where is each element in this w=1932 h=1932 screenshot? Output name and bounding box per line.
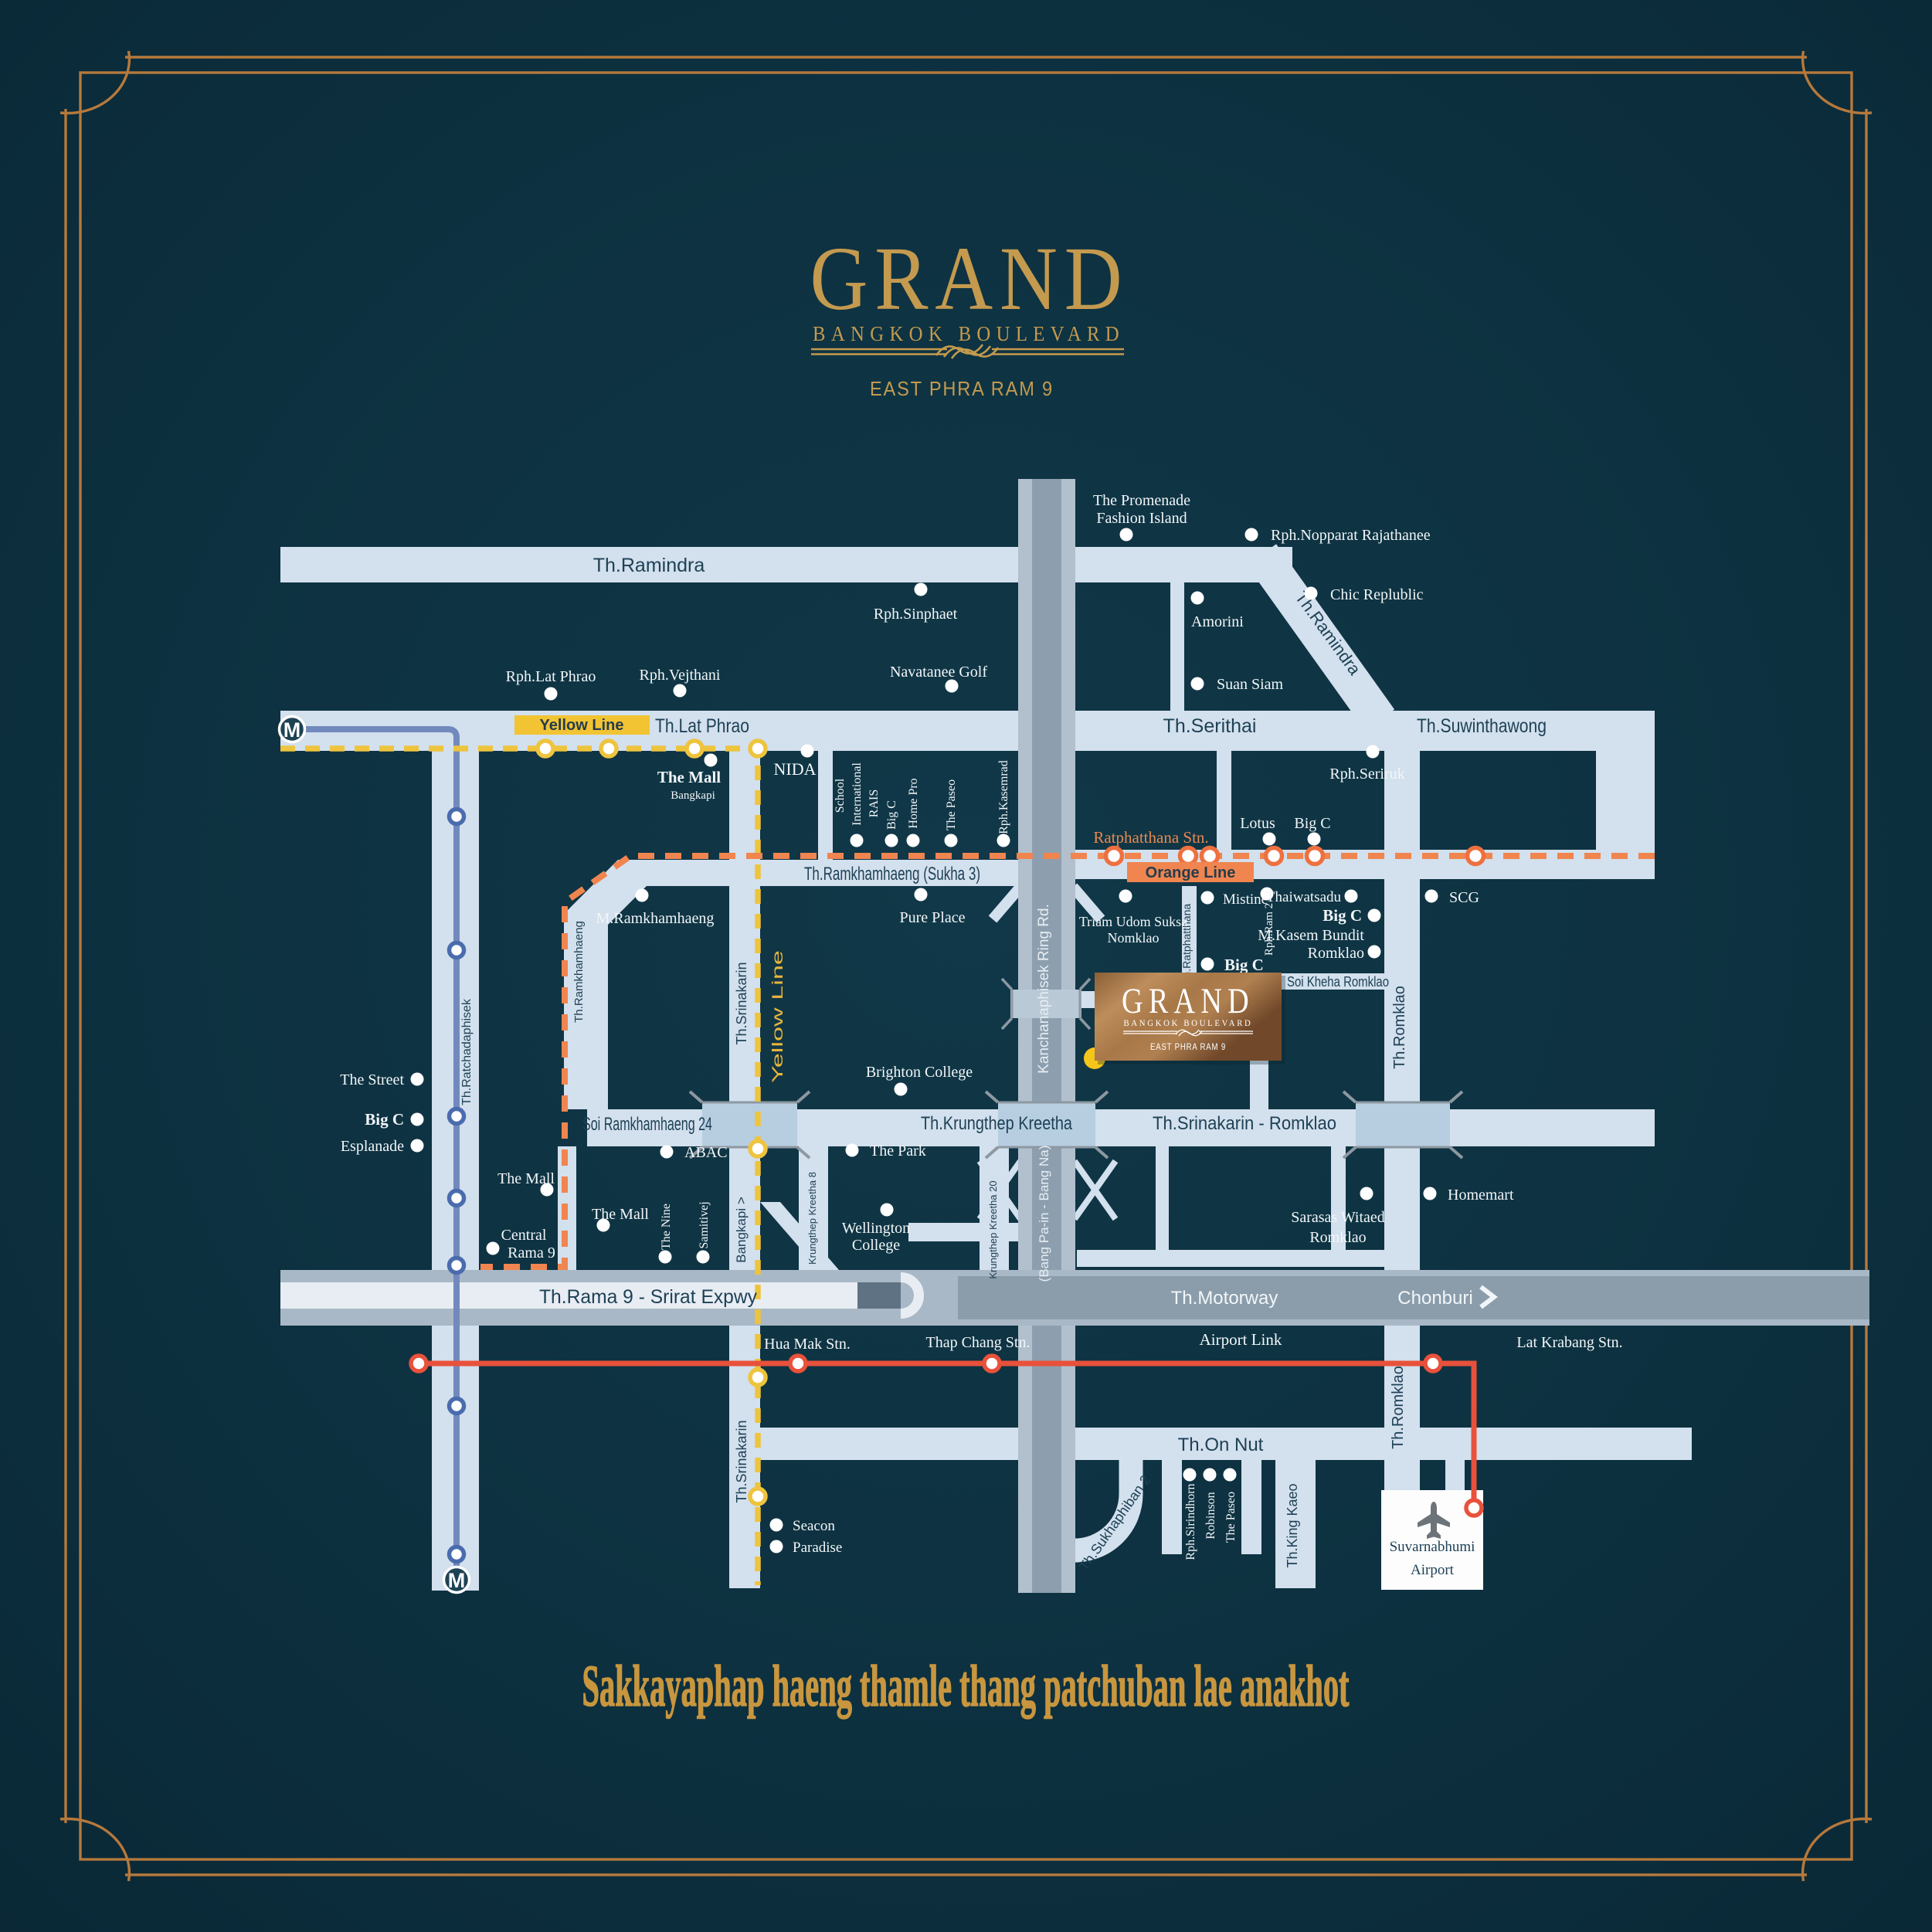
- svg-text:GRAND: GRAND: [1122, 981, 1255, 1021]
- svg-text:International: International: [851, 762, 864, 826]
- svg-text:The Mall: The Mall: [592, 1206, 649, 1223]
- svg-text:EAST PHRA RAM 9: EAST PHRA RAM 9: [1150, 1041, 1226, 1052]
- svg-text:The Mall: The Mall: [657, 768, 721, 786]
- svg-text:Big C: Big C: [1294, 815, 1330, 832]
- svg-text:Th.Motorway: Th.Motorway: [1171, 1288, 1278, 1309]
- svg-text:Thap Chang Stn.: Thap Chang Stn.: [926, 1334, 1031, 1351]
- svg-text:Romklao: Romklao: [1308, 945, 1364, 962]
- svg-text:Rph.Vejthani: Rph.Vejthani: [640, 667, 721, 684]
- svg-text:Rama 9: Rama 9: [508, 1244, 555, 1261]
- svg-text:Sakkayaphap haeng thamle thang: Sakkayaphap haeng thamle thang patchuban…: [582, 1654, 1350, 1719]
- svg-text:GRAND: GRAND: [810, 228, 1129, 329]
- svg-text:Orange Line: Orange Line: [1146, 864, 1236, 881]
- svg-text:Big C: Big C: [365, 1110, 404, 1129]
- svg-text:M.Kasem Bundit: M.Kasem Bundit: [1258, 927, 1364, 944]
- svg-text:Lat Krabang Stn.: Lat Krabang Stn.: [1516, 1334, 1622, 1351]
- svg-text:(Bang Pa-in - Bang Na): (Bang Pa-in - Bang Na): [1037, 1146, 1051, 1282]
- svg-text:Fashion Island: Fashion Island: [1096, 510, 1187, 527]
- svg-text:The Park: The Park: [870, 1143, 926, 1160]
- svg-text:Ratphatthana Stn.: Ratphatthana Stn.: [1093, 828, 1208, 847]
- svg-text:Soi Kheha Romklao: Soi Kheha Romklao: [1287, 974, 1389, 990]
- svg-text:M: M: [448, 1569, 466, 1592]
- svg-text:Th.Krungthep Kreetha: Th.Krungthep Kreetha: [921, 1113, 1073, 1134]
- svg-text:Th.Srinakarin: Th.Srinakarin: [734, 1420, 749, 1502]
- svg-text:BANGKOK BOULEVARD: BANGKOK BOULEVARD: [813, 322, 1125, 345]
- svg-text:Big C: Big C: [1224, 956, 1264, 974]
- svg-text:Sarasas Witaed: Sarasas Witaed: [1291, 1209, 1385, 1226]
- svg-text:Bangkapi >: Bangkapi >: [734, 1197, 749, 1263]
- svg-text:Esplanade: Esplanade: [341, 1138, 404, 1155]
- svg-text:Soi Ramkhamhaeng 24: Soi Ramkhamhaeng 24: [582, 1114, 712, 1135]
- svg-text:Rph.Seriruk: Rph.Seriruk: [1329, 766, 1404, 783]
- svg-text:Seacon: Seacon: [793, 1518, 835, 1534]
- svg-text:Krungthep Kreetha 20: Krungthep Kreetha 20: [987, 1180, 999, 1278]
- svg-text:Suvarnabhumi: Suvarnabhumi: [1390, 1539, 1475, 1555]
- svg-text:RAIS: RAIS: [868, 789, 881, 817]
- svg-text:Chonburi: Chonburi: [1397, 1288, 1472, 1309]
- svg-text:BANGKOK BOULEVARD: BANGKOK BOULEVARD: [1124, 1017, 1253, 1028]
- svg-text:Bangkapi: Bangkapi: [671, 789, 715, 802]
- svg-text:Rph.Sirindhorn: Rph.Sirindhorn: [1184, 1483, 1197, 1560]
- svg-text:Homemart: Homemart: [1448, 1187, 1514, 1204]
- svg-text:Brighton College: Brighton College: [866, 1064, 973, 1081]
- svg-text:Th.Ramkhamhaeng (Sukha 3): Th.Ramkhamhaeng (Sukha 3): [804, 864, 980, 885]
- svg-text:Yellow Line: Yellow Line: [540, 717, 624, 734]
- svg-text:Th.Ramindra: Th.Ramindra: [593, 555, 705, 576]
- svg-text:Th.Serithai: Th.Serithai: [1163, 715, 1257, 737]
- svg-text:Samitivej: Samitivej: [698, 1201, 711, 1248]
- svg-text:Th.Ratchadaphisek: Th.Ratchadaphisek: [460, 998, 474, 1105]
- svg-text:Thaiwatsadu: Thaiwatsadu: [1266, 889, 1342, 905]
- svg-text:NIDA: NIDA: [774, 759, 817, 779]
- svg-text:Yellow Line: Yellow Line: [770, 950, 786, 1083]
- svg-text:Nomklao: Nomklao: [1108, 930, 1160, 946]
- svg-text:Amorini: Amorini: [1191, 613, 1244, 630]
- svg-text:Pure Place: Pure Place: [900, 909, 966, 926]
- svg-text:College: College: [852, 1237, 900, 1254]
- svg-text:M: M: [284, 718, 301, 742]
- svg-text:Th.Rama 9 - Srirat Expwy: Th.Rama 9 - Srirat Expwy: [539, 1286, 757, 1308]
- svg-text:Wellington: Wellington: [842, 1220, 910, 1237]
- svg-text:Rph.Lat Phrao: Rph.Lat Phrao: [506, 668, 596, 685]
- svg-text:Hua Mak Stn.: Hua Mak Stn.: [764, 1336, 851, 1353]
- svg-text:Kanchanaphisek Ring Rd.: Kanchanaphisek Ring Rd.: [1036, 904, 1052, 1074]
- svg-text:Th.Romklao: Th.Romklao: [1390, 1366, 1407, 1449]
- svg-text:Rph.Nopparat Rajathanee: Rph.Nopparat Rajathanee: [1271, 527, 1431, 544]
- svg-text:ABAC: ABAC: [684, 1144, 728, 1161]
- svg-text:Rph.Kasemrad: Rph.Kasemrad: [997, 760, 1010, 834]
- svg-text:Central: Central: [501, 1227, 547, 1244]
- svg-text:Robinson: Robinson: [1204, 1492, 1217, 1539]
- svg-text:Navatanee Golf: Navatanee Golf: [890, 664, 987, 681]
- svg-text:EAST PHRA RAM 9: EAST PHRA RAM 9: [870, 377, 1054, 400]
- svg-text:Paradise: Paradise: [793, 1540, 842, 1556]
- svg-text:Th.Ramkhamhaeng: Th.Ramkhamhaeng: [572, 921, 586, 1023]
- svg-text:Big C: Big C: [885, 800, 898, 830]
- svg-text:M.Ramkhamhaeng: M.Ramkhamhaeng: [596, 910, 715, 927]
- svg-text:The Promenade: The Promenade: [1093, 492, 1190, 509]
- svg-text:School: School: [834, 778, 847, 813]
- svg-text:Triam Udom Suksa: Triam Udom Suksa: [1079, 914, 1187, 929]
- svg-text:SCG: SCG: [1449, 889, 1479, 906]
- svg-text:Th.On Nut: Th.On Nut: [1178, 1435, 1264, 1455]
- svg-text:Th.Romklao: Th.Romklao: [1391, 986, 1408, 1069]
- svg-text:Airport Link: Airport Link: [1200, 1330, 1282, 1349]
- svg-text:Home Pro: Home Pro: [907, 778, 920, 828]
- svg-text:Romklao: Romklao: [1309, 1229, 1366, 1246]
- svg-text:The Mall: The Mall: [497, 1170, 555, 1187]
- svg-text:Krungthep Kreetha 8: Krungthep Kreetha 8: [806, 1172, 818, 1265]
- svg-text:Rph.Sinphaet: Rph.Sinphaet: [874, 606, 958, 623]
- svg-text:Th.Srinakarin: Th.Srinakarin: [734, 962, 749, 1044]
- svg-text:The Street: The Street: [340, 1071, 404, 1088]
- svg-text:Th.Lat Phrao: Th.Lat Phrao: [655, 715, 749, 737]
- svg-text:Big C: Big C: [1323, 906, 1362, 925]
- svg-text:Suan Siam: Suan Siam: [1217, 676, 1284, 693]
- svg-text:Lotus: Lotus: [1240, 815, 1275, 832]
- svg-text:The Paseo: The Paseo: [945, 779, 958, 830]
- svg-text:Chic Replublic: Chic Replublic: [1330, 586, 1424, 603]
- svg-text:The Paseo: The Paseo: [1224, 1492, 1238, 1543]
- svg-text:Th.King Kaeo: Th.King Kaeo: [1285, 1483, 1300, 1567]
- svg-text:Airport: Airport: [1411, 1562, 1455, 1578]
- svg-text:The Nine: The Nine: [660, 1204, 673, 1250]
- svg-text:Th.Srinakarin - Romklao: Th.Srinakarin - Romklao: [1153, 1113, 1336, 1134]
- svg-text:Th.Suwinthawong: Th.Suwinthawong: [1417, 715, 1547, 737]
